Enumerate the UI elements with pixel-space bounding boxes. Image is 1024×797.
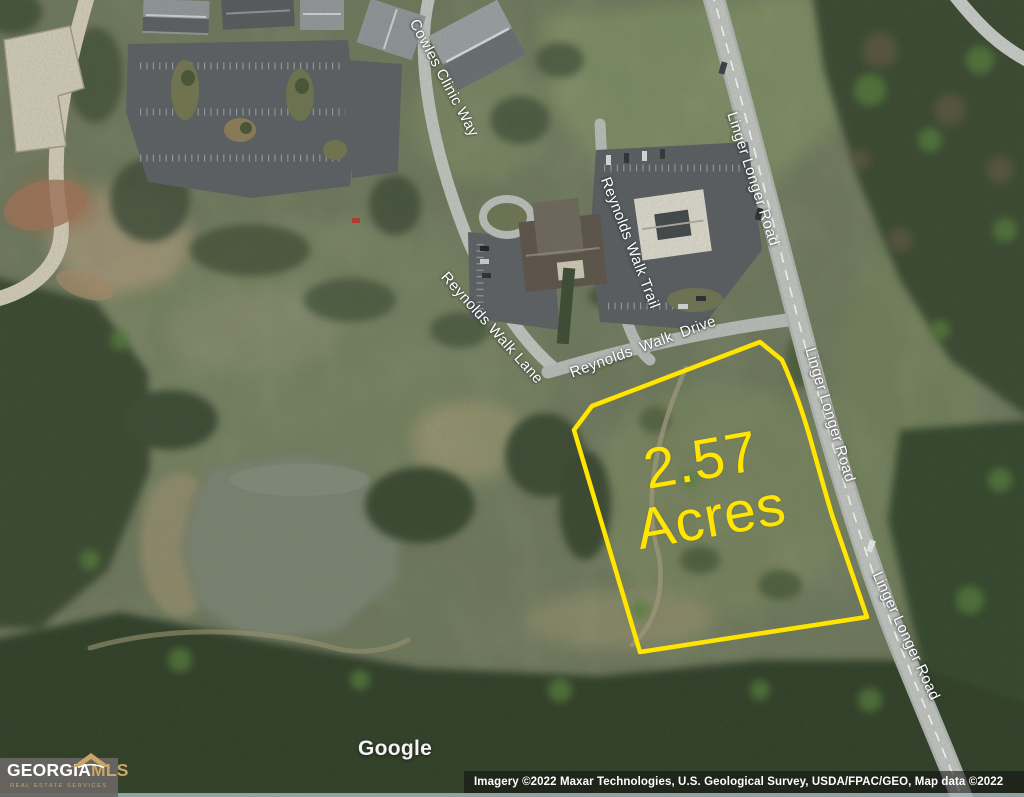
- satellite-map[interactable]: Cowles Clinic Way Reynolds Walk Trail Re…: [0, 0, 1024, 797]
- georgia-mls-logo: GEORGIAMLS REAL ESTATE SERVICES: [0, 758, 118, 797]
- attribution-text: Imagery ©2022 Maxar Technologies, U.S. G…: [464, 776, 1003, 788]
- google-watermark: Google: [358, 737, 432, 761]
- logo-tagline: REAL ESTATE SERVICES: [0, 780, 118, 789]
- image-grain: [0, 0, 1024, 797]
- map-imagery: [0, 0, 1024, 797]
- parcel-area-label: 2.57 Acres: [622, 419, 791, 560]
- attribution-bar: Imagery ©2022 Maxar Technologies, U.S. G…: [464, 771, 1024, 793]
- roof-icon: [70, 751, 114, 769]
